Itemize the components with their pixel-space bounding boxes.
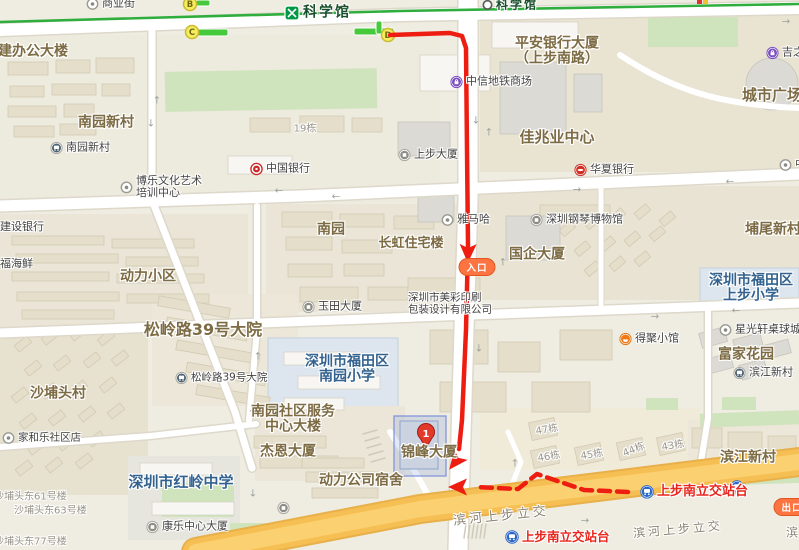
poi-dot-icon[interactable] — [779, 159, 792, 172]
area-changhong-zhuzhailou: 长虹住宅楼 — [378, 237, 443, 251]
poi-building-icon[interactable] — [530, 214, 543, 227]
label-text: 长虹住宅楼 — [378, 237, 443, 251]
poi-partial-zhong[interactable]: 中 — [779, 159, 799, 172]
area-puwei-xincun: 埔尾新村 — [745, 222, 799, 237]
label-text: 商业街 — [102, 0, 135, 10]
label-text: 康乐中心大厦 — [162, 521, 228, 533]
area-guoqi-dasha: 国企大厦 — [509, 247, 565, 262]
label-text: 沙埔头东63号楼 — [14, 506, 87, 517]
label-text: 雅马哈 — [457, 214, 490, 226]
mall-purple-icon[interactable] — [450, 76, 463, 89]
label-text: 上步大厦 — [414, 149, 458, 161]
label-text: 杰恩大厦 — [260, 444, 316, 459]
label-text: 上步南立交站台 — [522, 530, 610, 544]
label-text: 深圳市福田区南园小学 — [305, 355, 389, 386]
area-jiazhaoye-center: 佳兆业中心 — [519, 129, 594, 146]
label-text: 中 — [795, 159, 799, 171]
poi-bole-art-center[interactable]: 博乐文化艺术培训中心 — [120, 175, 202, 199]
area-shabutou-cun: 沙埔头村 — [30, 386, 86, 401]
label-text: 松岭路39号大院 — [144, 321, 262, 339]
metro-station-kexueguan-secondary[interactable]: 科学馆 — [482, 0, 538, 12]
poi-bank-of-china[interactable]: 中国银行 — [250, 163, 310, 176]
bus-grey-icon[interactable] — [733, 367, 746, 380]
label-text: 南园新村 — [66, 142, 110, 154]
label-text: 滨 — [786, 526, 799, 539]
poi-yamaha[interactable]: 雅马哈 — [441, 214, 490, 227]
bldg-shabutou-61: 沙埔头东61号楼 — [0, 492, 67, 503]
poi-building-icon[interactable] — [146, 521, 159, 534]
bank-red-icon[interactable] — [250, 163, 263, 176]
road-direction-arrow: ← — [732, 306, 740, 317]
poi-dot-icon[interactable] — [120, 181, 133, 194]
busstop-shangbunan-platform-2[interactable]: 上步南立交站台 — [505, 530, 610, 544]
poi-xingguangxuan-billiards[interactable]: 星光轩桌球城 — [719, 324, 799, 337]
busstop-binjiang-xincun[interactable]: 滨江新村 — [733, 367, 793, 380]
label-text: 滨江新村 — [720, 450, 776, 465]
route-exit-capsule[interactable]: 出口 — [773, 498, 799, 516]
area-jieen-dasha: 杰恩大厦 — [260, 444, 316, 459]
road-direction-arrow: → — [782, 17, 790, 28]
label-text: 星光轩桌球城 — [735, 324, 799, 336]
mall-purple-icon[interactable] — [766, 47, 779, 60]
label-text: 沙埔头东77号楼 — [0, 537, 67, 548]
poi-shangyejie[interactable]: 商业街 — [86, 0, 135, 11]
area-nanyuan-shequ-center: 南园社区服务中心大楼 — [251, 405, 335, 436]
map-labels-layer: ↑↓↓↑←←→←→←↑↑↓↑↓→↑→建办公大楼南园新村动力小区南园长虹住宅楼松岭… — [0, 0, 799, 550]
roadname-binhe-shangbu-2: 滨河上步立交 — [633, 520, 724, 541]
label-text: 沙埔头东61号楼 — [0, 492, 67, 503]
poi-meicai-printing[interactable]: 深圳市美彩印刷包装设计有限公司 — [408, 292, 492, 315]
road-direction-arrow: ↑ — [485, 128, 493, 139]
area-nanyuan-xincun: 南园新村 — [78, 115, 134, 130]
area-songlinglu-39: 松岭路39号大院 — [144, 321, 262, 339]
bldg-shabutou-63: 沙埔头东63号楼 — [14, 506, 87, 517]
road-direction-arrow: → — [651, 312, 659, 323]
label-text: 埔尾新村 — [745, 222, 799, 237]
bus-blue-icon[interactable] — [640, 485, 654, 499]
label-text: 19栋 — [294, 124, 317, 135]
label-text: 44栋 — [621, 441, 646, 460]
poi-shangbu-dasha[interactable]: 上步大厦 — [398, 149, 458, 162]
label-text: 中国银行 — [266, 163, 310, 175]
poi-building-icon[interactable] — [277, 502, 290, 515]
label-text: 科学馆 — [303, 5, 351, 20]
poi-deju-restaurant[interactable]: 得聚小馆 — [619, 333, 679, 346]
poi-dot-icon[interactable] — [719, 324, 732, 337]
poi-ccb-bank[interactable]: 建设银行 — [0, 221, 44, 233]
area-binjiang-xincun: 滨江新村 — [720, 450, 776, 465]
poi-fuhaixian[interactable]: 福海鲜 — [0, 258, 33, 270]
route-exit-capsule-text: 出口 — [773, 498, 799, 516]
school-nanyuan-primary: 深圳市福田区南园小学 — [305, 355, 389, 386]
label-text: 玉田大厦 — [318, 301, 362, 313]
area-fujia-huayuan: 富家花园 — [718, 347, 774, 362]
area-pingan-bank-tower: 平安银行大厦（上步南路） — [515, 37, 599, 68]
area-nanyuan: 南园 — [317, 222, 345, 237]
busstop-shangbunan-platform-1[interactable]: 上步南立交站台 — [640, 485, 748, 499]
label-text: 福海鲜 — [0, 258, 33, 270]
school-shangbu-primary: 深圳市福田区上步小学 — [709, 274, 793, 305]
route-entrance-capsule[interactable]: 入口 — [458, 258, 495, 276]
label-text: 建设银行 — [0, 221, 44, 233]
bldg-no-44: 44栋 — [621, 441, 646, 460]
bus-blue-icon[interactable] — [505, 530, 519, 544]
poi-dot-icon[interactable] — [86, 0, 99, 11]
road-direction-arrow: ↓ — [249, 489, 257, 500]
road-direction-arrow: ↓ — [472, 116, 480, 127]
label-text: 45栋 — [580, 448, 604, 463]
label-text: 家和乐社区店 — [18, 432, 81, 444]
label-text: 吉之岛 — [782, 47, 799, 59]
label-text: 平安银行大厦（上步南路） — [515, 37, 599, 68]
roadname-binhe-shangbu-1: 滨河上步立交 — [453, 505, 550, 529]
label-text: 南园社区服务中心大楼 — [251, 405, 335, 436]
poi-jiahele-store[interactable]: 家和乐社区店 — [2, 432, 81, 445]
area-dongli-sushe: 动力公司宿舍 — [319, 473, 403, 488]
area-jian-bangong-dalou: 建办公大楼 — [0, 44, 68, 59]
bldg-no-45: 45栋 — [580, 448, 604, 463]
road-direction-arrow: ← — [332, 192, 340, 203]
label-text: 城市广场 — [742, 87, 799, 104]
label-text: 得聚小馆 — [635, 333, 679, 345]
label-text: 动力公司宿舍 — [319, 473, 403, 488]
label-text: 动力小区 — [120, 269, 176, 284]
label-text: 锦峰大厦 — [401, 445, 457, 460]
area-jinfeng-dasha: 锦峰大厦 — [401, 445, 457, 460]
map-canvas[interactable]: BCD 1 ↑↓↓↑←←→←→←↑↑↓↑↓→↑→建办公大楼南园新村动力小区南园长… — [0, 0, 799, 550]
roadname-partial-bin: 滨 — [786, 526, 799, 539]
area-chengshi-guangchang: 城市广场 — [742, 87, 799, 104]
bldg-no-43: 43栋 — [661, 439, 685, 454]
label-text: 深圳市红岭中学 — [128, 474, 233, 491]
label-text: 华夏银行 — [590, 164, 634, 176]
label-text: 佳兆业中心 — [519, 129, 594, 146]
busstop-nanyuan-xincun[interactable]: 南园新村 — [50, 142, 110, 155]
poi-huaxia-bank[interactable]: 华夏银行 — [574, 164, 634, 177]
road-direction-arrow: ↓ — [147, 119, 155, 130]
white-circle-icon[interactable] — [482, 0, 493, 11]
label-text: 国企大厦 — [509, 247, 565, 262]
label-text: 富家花园 — [718, 347, 774, 362]
poi-building-icon[interactable] — [398, 149, 411, 162]
label-text: 滨江新村 — [749, 367, 793, 379]
road-direction-arrow: ↑ — [153, 96, 161, 107]
poi-piano-museum[interactable]: 深圳钢琴博物馆 — [530, 214, 623, 227]
road-direction-arrow: ← — [726, 177, 734, 188]
poi-unlabeled-icon[interactable] — [277, 502, 293, 515]
label-text: 上步南立交站台 — [657, 485, 748, 499]
road-direction-arrow: ↑ — [511, 459, 519, 470]
poi-kangle-center[interactable]: 康乐中心大厦 — [146, 521, 228, 534]
bldg-no-47: 47栋 — [535, 423, 559, 438]
label-text: 深圳钢琴博物馆 — [546, 214, 623, 226]
school-hongling-middle: 深圳市红岭中学 — [128, 474, 233, 491]
label-text: 建办公大楼 — [0, 44, 68, 59]
poi-dot-icon[interactable] — [441, 214, 454, 227]
food-orange-icon[interactable] — [619, 333, 632, 346]
bus-grey-icon[interactable] — [50, 142, 63, 155]
label-text: 43栋 — [661, 439, 685, 454]
bldg-no-46: 46栋 — [537, 450, 561, 465]
label-text: 46栋 — [537, 450, 561, 465]
poi-dot-icon[interactable] — [2, 432, 15, 445]
poi-zhongxin-metro-mall[interactable]: 中信地铁商场 — [450, 76, 532, 89]
label-text: 47栋 — [535, 423, 559, 438]
poi-jizhidao[interactable]: 吉之岛 — [766, 47, 799, 60]
label-text: 深圳市福田区上步小学 — [709, 274, 793, 305]
road-direction-arrow: ↑ — [499, 258, 507, 269]
metro-station-kexueguan-main[interactable]: 科学馆 — [303, 5, 351, 20]
label-text: 沙埔头村 — [30, 386, 86, 401]
label-text: 南园 — [317, 222, 345, 237]
area-dongli-xiaoqu: 动力小区 — [120, 269, 176, 284]
label-text: 滨河上步立交 — [453, 505, 550, 529]
label-text: 滨河上步立交 — [633, 520, 724, 541]
label-text: 博乐文化艺术培训中心 — [136, 175, 202, 199]
bus-grey-icon[interactable] — [175, 372, 188, 385]
bank-eye-icon[interactable] — [574, 164, 587, 177]
route-entrance-capsule-text: 入口 — [458, 258, 495, 276]
poi-yutian-dasha[interactable]: 玉田大厦 — [302, 301, 362, 314]
road-direction-arrow: ← — [275, 186, 283, 197]
label-text: 中信地铁商场 — [466, 76, 532, 88]
bldg-shabutou-77: 沙埔头东77号楼 — [0, 537, 67, 548]
road-direction-arrow: → — [573, 185, 581, 196]
label-text: 科学馆 — [496, 0, 538, 12]
label-text: 南园新村 — [78, 115, 134, 130]
road-direction-arrow: ↑ — [254, 352, 262, 363]
road-direction-arrow: → — [581, 516, 589, 527]
busstop-songlinglu-39[interactable]: 松岭路39号大院 — [175, 372, 267, 385]
label-text: 深圳市美彩印刷包装设计有限公司 — [408, 292, 492, 315]
poi-building-icon[interactable] — [302, 301, 315, 314]
label-text: 松岭路39号大院 — [191, 372, 267, 384]
bldg-no-19: 19栋 — [294, 124, 317, 135]
road-direction-arrow: ↓ — [475, 344, 483, 355]
